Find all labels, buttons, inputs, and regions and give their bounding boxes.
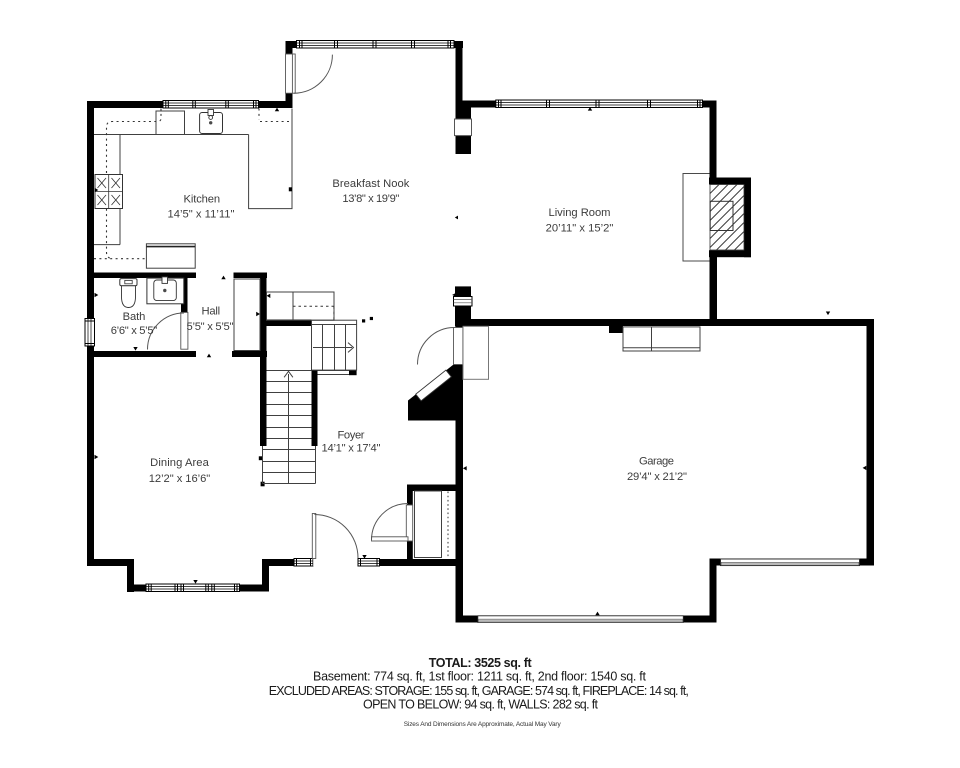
svg-text:Sizes And Dimensions Are Appro: Sizes And Dimensions Are Approximate, Ac… [404, 721, 562, 728]
svg-text:Dining Area: Dining Area [150, 457, 209, 469]
svg-text:EXCLUDED AREAS: STORAGE: 155 s: EXCLUDED AREAS: STORAGE: 155 sq. ft, GAR… [269, 684, 689, 698]
svg-text:Hall: Hall [202, 306, 221, 318]
svg-text:Bath: Bath [123, 311, 146, 323]
svg-text:29’4" x 21’2": 29’4" x 21’2" [627, 471, 687, 483]
svg-text:OPEN TO BELOW: 94 sq. ft, WALL: OPEN TO BELOW: 94 sq. ft, WALLS: 282 sq.… [363, 697, 599, 711]
svg-text:Garage: Garage [639, 456, 674, 468]
svg-text:5’5" x 5’5": 5’5" x 5’5" [187, 321, 234, 333]
svg-text:12’2" x 16’6": 12’2" x 16’6" [149, 473, 211, 485]
svg-text:Basement: 774 sq. ft, 1st floo: Basement: 774 sq. ft, 1st floor: 1211 sq… [313, 669, 647, 683]
svg-text:Kitchen: Kitchen [184, 194, 221, 206]
svg-text:14’1" x 17’4": 14’1" x 17’4" [322, 443, 381, 455]
svg-text:Breakfast Nook: Breakfast Nook [332, 178, 409, 190]
svg-text:TOTAL: 3525 sq. ft: TOTAL: 3525 sq. ft [429, 656, 533, 670]
svg-text:20’11" x 15’2": 20’11" x 15’2" [546, 222, 614, 234]
svg-text:Living Room: Living Room [549, 207, 611, 219]
svg-text:13’8" x 19’9": 13’8" x 19’9" [342, 193, 399, 205]
svg-text:6’6" x 5’5": 6’6" x 5’5" [111, 325, 158, 337]
svg-text:14’5" x 11’11": 14’5" x 11’11" [168, 209, 235, 221]
svg-text:Foyer: Foyer [338, 430, 365, 442]
